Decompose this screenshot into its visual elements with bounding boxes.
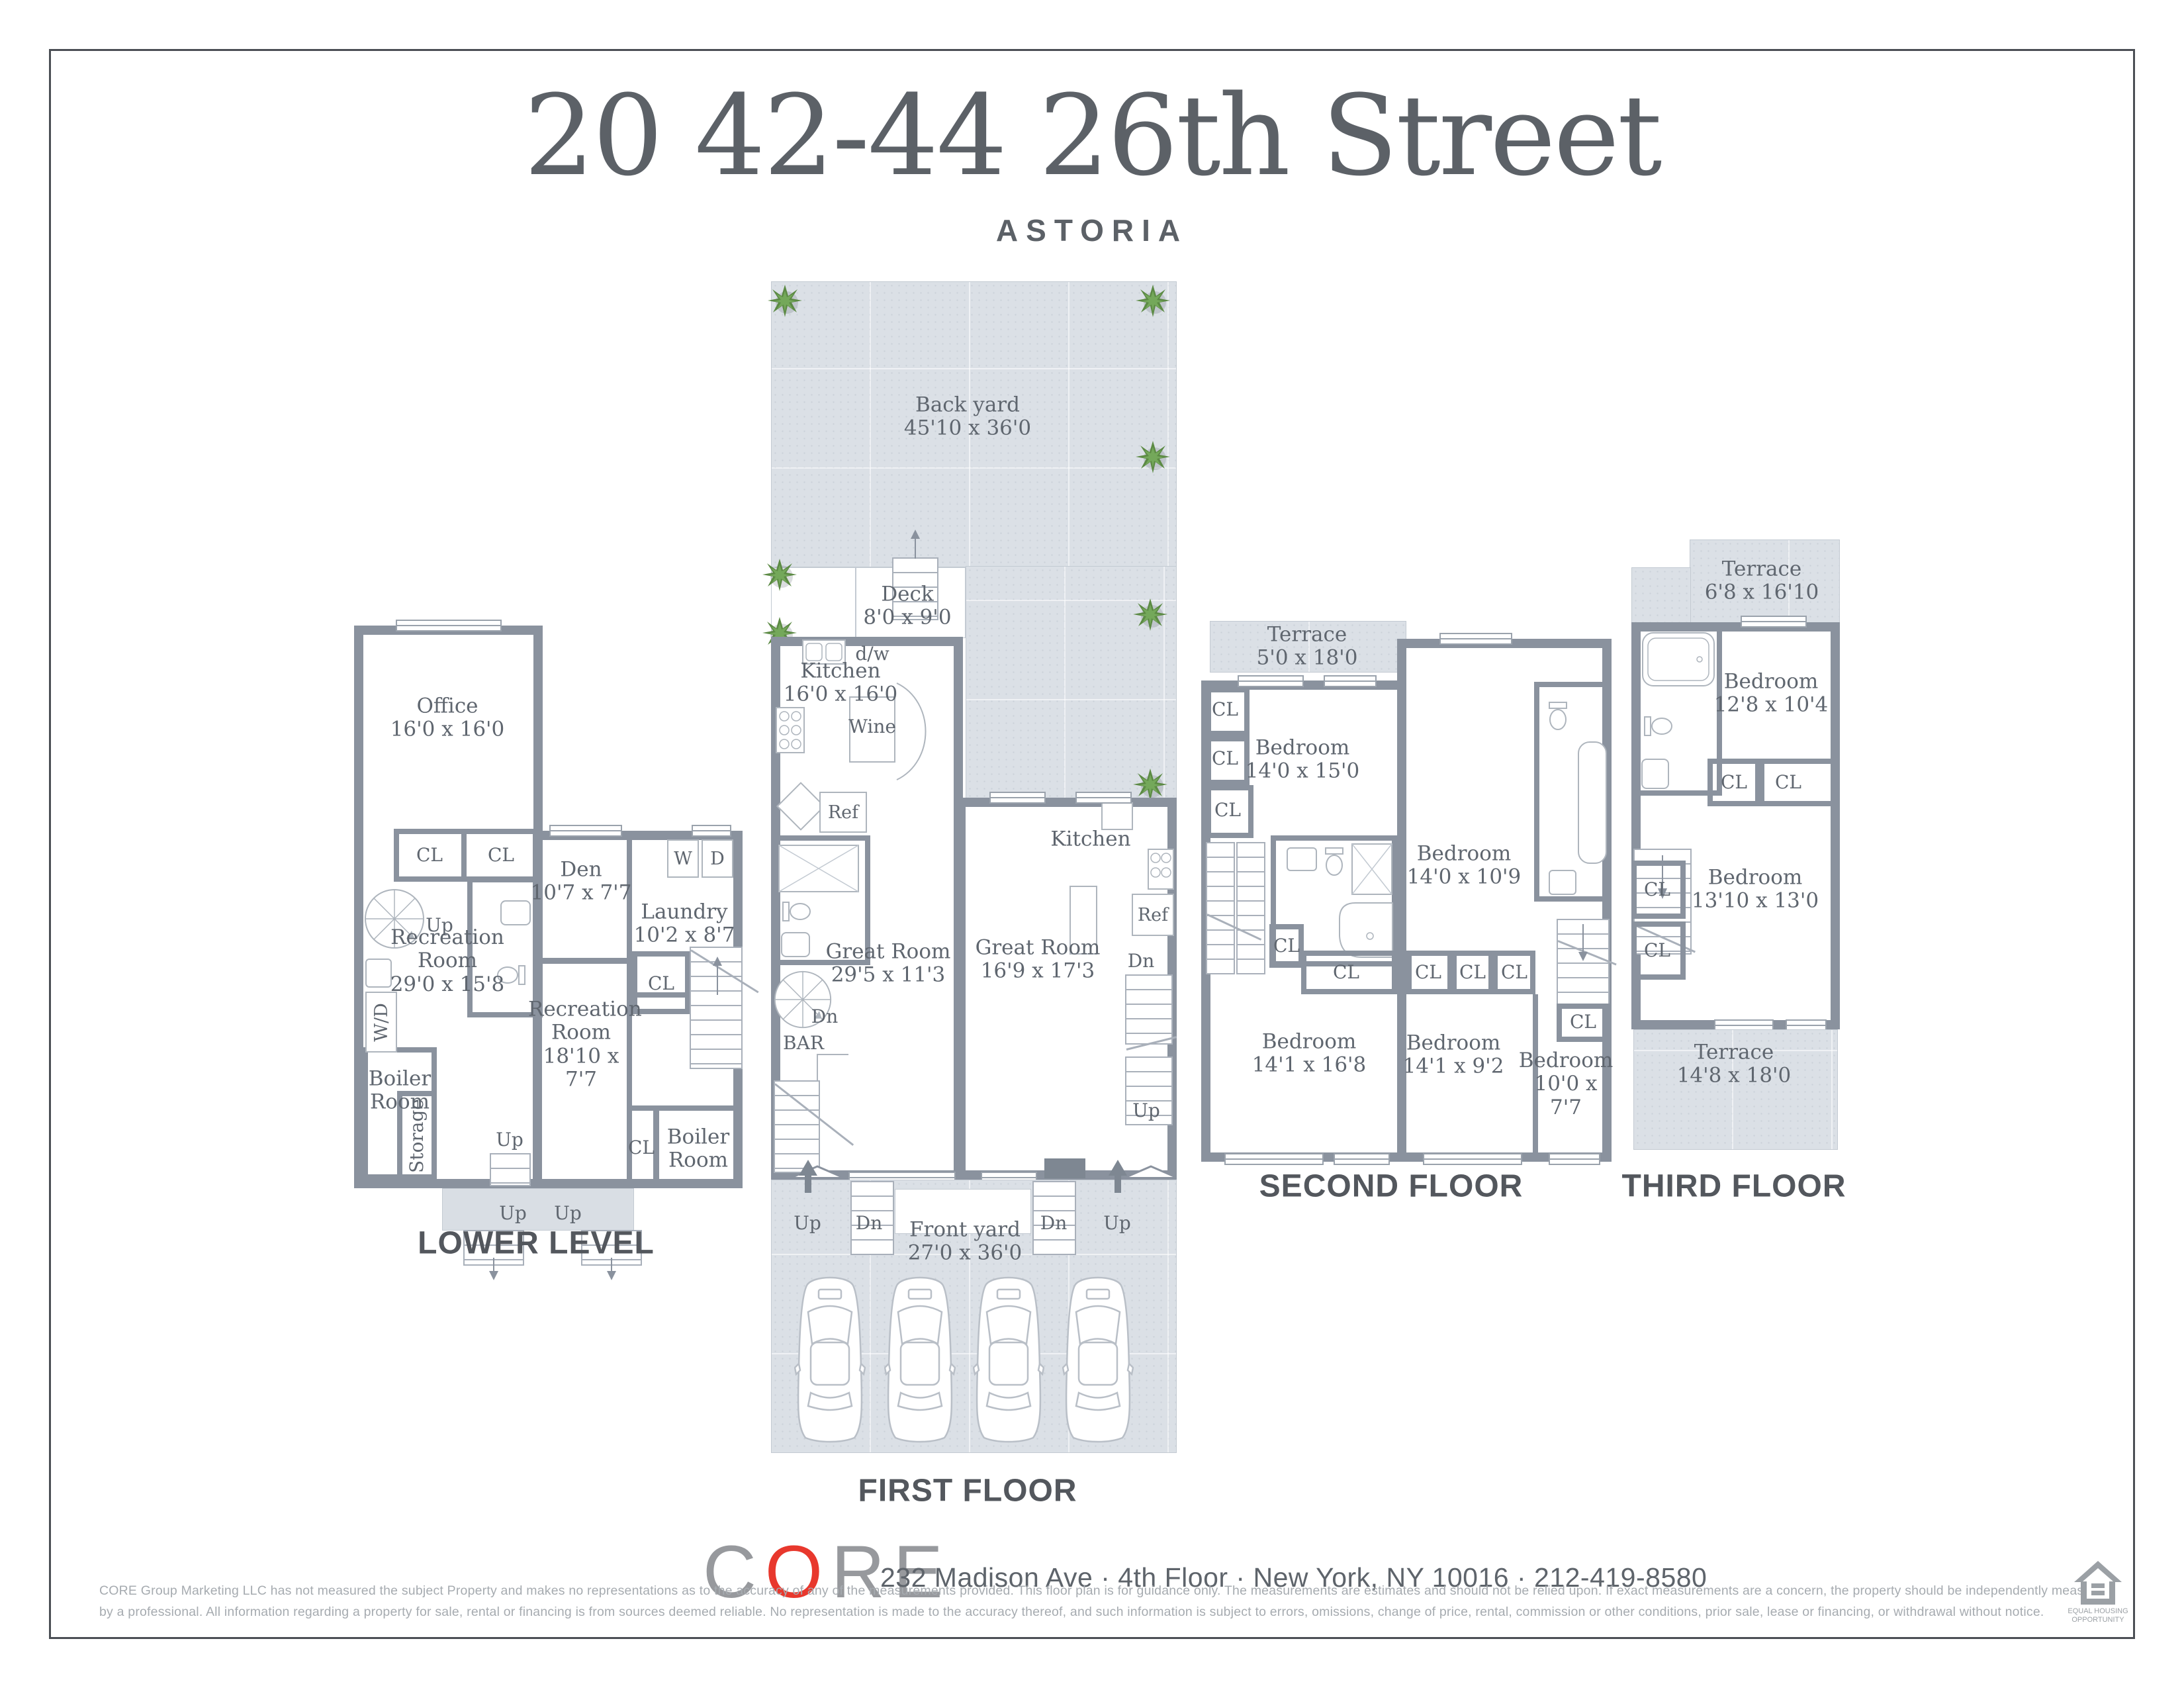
car-icon	[884, 1270, 956, 1443]
closet-label: CL	[416, 845, 443, 866]
core-logo-c: C	[703, 1530, 765, 1613]
island-counter-arc	[895, 682, 942, 781]
room-label-terrace2f: Terrace5'0 x 18'0	[1257, 624, 1358, 671]
room-label-deck: Deck8'0 x 9'0	[863, 583, 951, 630]
closet-label: CL	[1214, 800, 1241, 821]
lower-entry-stairs	[490, 1153, 531, 1186]
closet-label: CL	[1721, 772, 1747, 793]
dn-label: Dn	[1128, 951, 1154, 972]
disclaimer-line-2: by a professional. All information regar…	[99, 1605, 2044, 1620]
second-stairs-left-a	[1206, 842, 1235, 974]
closet-label: CL	[1644, 879, 1670, 900]
closet-label: CL	[488, 845, 514, 866]
car-icon	[794, 1270, 866, 1443]
lower-stoop	[442, 1188, 634, 1231]
floor-title-second: SECOND FLOOR	[1259, 1168, 1524, 1205]
refrigerator: Ref	[819, 792, 867, 833]
window	[1224, 1153, 1324, 1165]
down-arrow-icon	[1576, 923, 1590, 962]
car-icon	[1062, 1270, 1134, 1443]
closet-label: CL	[1644, 940, 1670, 961]
window	[549, 825, 622, 837]
sink-icon	[781, 932, 810, 957]
closet-label: CL	[1212, 699, 1238, 720]
dn-label: Dn	[1040, 1213, 1067, 1234]
window	[1324, 675, 1377, 687]
toilet-icon	[781, 898, 813, 925]
window	[1075, 792, 1132, 804]
plant-icon	[766, 282, 803, 319]
washer-dryer-unit: W/D	[365, 992, 397, 1053]
window	[1549, 1153, 1600, 1165]
closet-label: CL	[628, 1137, 655, 1158]
closet-label: CL	[1775, 772, 1801, 793]
second-stairs-left-b	[1236, 842, 1265, 974]
up-label: Up	[499, 1203, 527, 1224]
room-label-frontyard: Front yard27'0 x 36'0	[908, 1219, 1023, 1266]
first-stairs-right-upper	[1125, 974, 1173, 1045]
entry-arrow-icon	[1108, 1160, 1128, 1194]
toilet-icon	[1545, 700, 1571, 732]
window	[396, 620, 502, 632]
room-label-great2: Great Room16'9 x 17'3	[976, 937, 1101, 984]
room-label-bed2-2f: Bedroom14'0 x 10'9	[1407, 843, 1522, 890]
page-subtitle: ASTORIA	[996, 212, 1188, 248]
stove-icon	[1148, 849, 1174, 890]
room-label-great1: Great Room29'5 x 11'3	[826, 941, 951, 988]
room-label-bed2-3f: Bedroom13'10 x 13'0	[1692, 867, 1819, 914]
up-label: Up	[496, 1129, 523, 1150]
wine-label: Wine	[848, 716, 896, 737]
floorplan-sheet: 20 42-44 26th Street ASTORIA W/D W D Off…	[0, 0, 2184, 1688]
up-label: Up	[1132, 1100, 1160, 1121]
up-label: Up	[794, 1213, 821, 1234]
entry-door-icon	[1125, 1165, 1177, 1178]
dryer-unit: D	[702, 839, 733, 878]
page-title: 20 42-44 26th Street	[523, 71, 1660, 201]
closet-label: CL	[1501, 962, 1527, 983]
floor-title-first: FIRST FLOOR	[858, 1473, 1077, 1509]
plant-icon	[761, 556, 798, 593]
dn-label: Dn	[856, 1213, 882, 1234]
sink-icon	[1549, 870, 1576, 895]
stove-icon	[776, 707, 805, 753]
tub-icon	[1641, 632, 1715, 687]
room-label-kitch2: Kitchen	[1050, 827, 1130, 851]
core-logo-o: O	[765, 1530, 831, 1613]
refrigerator: Ref	[1132, 894, 1174, 936]
room-label-rec2: Recreation Room18'10 x 7'7	[528, 998, 634, 1091]
room-label-backyard: Back yard45'10 x 36'0	[904, 394, 1031, 441]
sink-icon	[1287, 847, 1317, 871]
room-label-bed3-2f: Bedroom14'1 x 16'8	[1252, 1031, 1367, 1078]
floor-title-third: THIRD FLOOR	[1622, 1168, 1846, 1205]
room-label-boiler-right: Boiler Room	[655, 1126, 741, 1173]
room-label-den: Den10'7 x 7'7	[531, 859, 632, 906]
shower-icon	[778, 845, 859, 892]
plant-icon	[1134, 438, 1171, 475]
car-icon	[973, 1270, 1044, 1443]
entry-arrow-icon	[798, 1160, 818, 1194]
window	[1238, 675, 1304, 687]
room-label-terrace2-3f: Terrace14'8 x 18'0	[1677, 1041, 1792, 1088]
closet-label: CL	[648, 973, 674, 994]
plant-icon	[1132, 596, 1169, 633]
window	[692, 825, 731, 837]
room-label-bed4-2f: Bedroom14'1 x 9'2	[1403, 1032, 1504, 1079]
room-label-office: Office16'0 x 16'0	[390, 695, 505, 742]
room-label-terrace1-3f: Terrace6'8 x 16'10	[1705, 558, 1819, 605]
window	[1423, 1153, 1522, 1165]
room-label-bed1-2f: Bedroom14'0 x 15'0	[1246, 737, 1360, 784]
chimney-block	[1044, 1158, 1085, 1178]
toilet-icon	[1321, 846, 1347, 878]
room-label-kitchen1: Kitchen16'0 x 16'0	[784, 660, 898, 707]
window	[1741, 616, 1807, 628]
equal-housing-icon	[2073, 1560, 2123, 1606]
sink-icon	[500, 900, 531, 925]
kitchen-sink-icon	[1101, 802, 1133, 830]
washer-dryer-label: W/D	[371, 1003, 392, 1042]
room-label-rec1: Recreation Room29'0 x 15'8	[385, 926, 510, 996]
plant-icon	[1134, 282, 1171, 319]
dn-label: Dn	[811, 1006, 838, 1027]
closet-label: CL	[1570, 1011, 1596, 1033]
up-label: Up	[554, 1203, 582, 1224]
up-label: Up	[426, 915, 453, 936]
closet-label: CL	[1459, 962, 1486, 983]
tub-icon	[1578, 741, 1607, 864]
sink-icon	[1641, 759, 1669, 789]
shower-icon	[1351, 843, 1392, 895]
room-label-bed5-2f: Bedroom10'0 x 7'7	[1516, 1049, 1615, 1119]
closet-label: CL	[1333, 962, 1359, 983]
up-arrow-icon	[908, 530, 923, 559]
up-arrow-icon	[709, 957, 725, 996]
third-terrace-top-step	[1631, 567, 1691, 624]
closet-label: CL	[1273, 935, 1300, 957]
bar-counter	[817, 1054, 848, 1113]
up-label: Up	[1103, 1213, 1131, 1234]
disclaimer-line-1: CORE Group Marketing LLC has not measure…	[99, 1583, 2110, 1599]
room-label-bed1-3f: Bedroom12'8 x 10'4	[1714, 671, 1829, 718]
window	[1439, 633, 1512, 645]
closet-label: CL	[1415, 962, 1441, 983]
equal-housing-label: EQUAL HOUSINGOPPORTUNITY	[2068, 1607, 2128, 1624]
bar-label: BAR	[783, 1033, 824, 1054]
washer-unit: W	[667, 839, 699, 878]
window	[989, 792, 1046, 804]
window	[1334, 1153, 1390, 1165]
closet-label: CL	[1212, 748, 1238, 769]
first-stairs-left	[774, 1080, 820, 1173]
storage-label: Storage	[406, 1099, 428, 1173]
floor-title-lower: LOWER LEVEL	[418, 1225, 655, 1262]
room-label-laundry: Laundry10'2 x 8'7	[634, 901, 735, 948]
toilet-icon	[1643, 712, 1674, 740]
